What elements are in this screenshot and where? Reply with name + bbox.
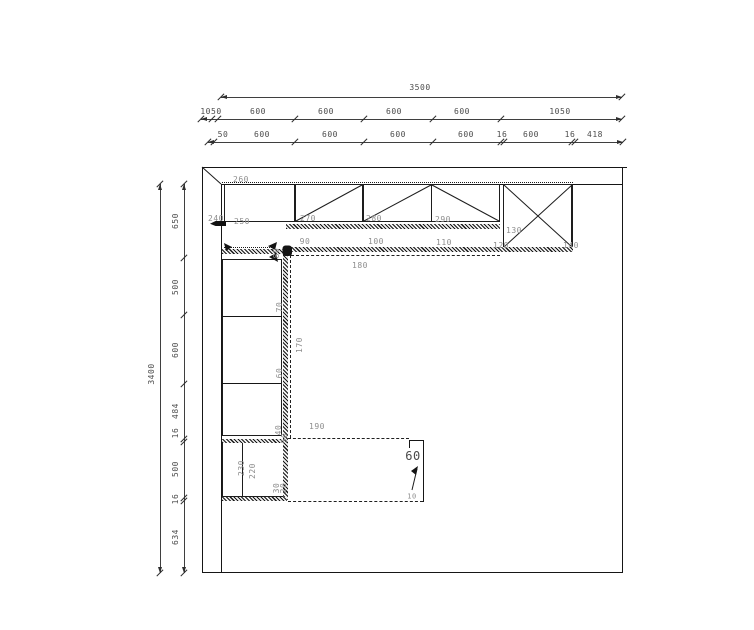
dim-tick <box>180 380 187 387</box>
dim-arrowhead <box>182 184 186 190</box>
dim-tick <box>360 138 367 145</box>
dim-label-d3400: 3400 <box>148 363 156 384</box>
dim-label-dA5: 600 <box>454 108 470 116</box>
item-label-i140: 140 <box>563 242 579 250</box>
item-label-i270: 270 <box>300 215 316 223</box>
dim-arrowhead <box>208 140 214 144</box>
item-label-i80: 80 <box>273 248 281 259</box>
dim-label-dL5: 16 <box>172 428 180 439</box>
dim-tick <box>497 115 504 122</box>
dim-arrowhead <box>221 95 227 99</box>
dim-label-dL2: 500 <box>172 279 180 295</box>
dim-label-dB2: 600 <box>254 131 270 139</box>
item-label-i50: 50 <box>281 433 289 444</box>
item-label-i130: 130 <box>506 227 522 235</box>
dim-tick <box>180 254 187 261</box>
item-label-i60: 60 <box>276 368 284 379</box>
dim-label-dL6: 500 <box>172 461 180 477</box>
dim-label-dB1: 50 <box>218 131 229 139</box>
dim-tick <box>360 115 367 122</box>
dim-label-dB3: 600 <box>322 131 338 139</box>
item-label-c60: 60 <box>405 450 420 462</box>
dim-label-dB7: 600 <box>523 131 539 139</box>
dim-label-dA4: 600 <box>386 108 402 116</box>
item-label-i170: 170 <box>296 337 304 353</box>
item-label-i110: 110 <box>436 239 452 247</box>
dim-label-dB9: 418 <box>587 131 603 139</box>
dim-label-dB4: 600 <box>390 131 406 139</box>
item-label-i180: 180 <box>352 262 368 270</box>
dim-label-dL4: 484 <box>172 403 180 419</box>
item-label-i220: 220 <box>249 463 257 479</box>
dim-tick <box>214 115 221 122</box>
dim-arrowhead <box>616 95 622 99</box>
item-label-i20: 20 <box>280 483 288 494</box>
item-label-i190: 190 <box>309 423 325 431</box>
dim-arrowhead <box>616 117 622 121</box>
item-label-i10: 10 <box>407 494 416 501</box>
dim-label-d3500: 3500 <box>409 84 430 92</box>
dim-arrowhead <box>617 140 623 144</box>
dim-tick <box>291 138 298 145</box>
dim-label-dL8: 634 <box>172 529 180 545</box>
dim-arrowhead <box>201 117 207 121</box>
plan-drawing-canvas: 3500105060060060060010505060060060060016… <box>0 0 754 630</box>
labels-layer: 3500105060060060060010505060060060060016… <box>0 0 754 630</box>
dim-tick <box>291 115 298 122</box>
dim-tick <box>180 311 187 318</box>
dim-arrowhead <box>158 567 162 573</box>
dim-arrowhead <box>158 184 162 190</box>
dim-label-dA3: 600 <box>318 108 334 116</box>
item-label-i280: 280 <box>366 215 382 223</box>
item-label-i120: 120 <box>493 242 509 250</box>
item-label-i250: 250 <box>234 218 250 226</box>
dim-label-dL1: 650 <box>172 213 180 229</box>
dim-label-dB5: 600 <box>458 131 474 139</box>
dim-label-dL3: 600 <box>172 342 180 358</box>
item-label-i90: 90 <box>300 238 311 246</box>
dim-label-dA2: 600 <box>250 108 266 116</box>
dim-tick <box>429 115 436 122</box>
dim-label-dL7: 16 <box>172 494 180 505</box>
dim-tick <box>429 138 436 145</box>
item-label-i230: 230 <box>238 460 246 476</box>
item-label-i260: 260 <box>233 176 249 184</box>
item-label-i100: 100 <box>368 238 384 246</box>
dim-label-dA6: 1050 <box>549 108 570 116</box>
item-label-i240: 240 <box>208 215 224 223</box>
item-label-i290: 290 <box>435 216 451 224</box>
item-label-i70: 70 <box>276 302 284 313</box>
dim-arrowhead <box>182 567 186 573</box>
